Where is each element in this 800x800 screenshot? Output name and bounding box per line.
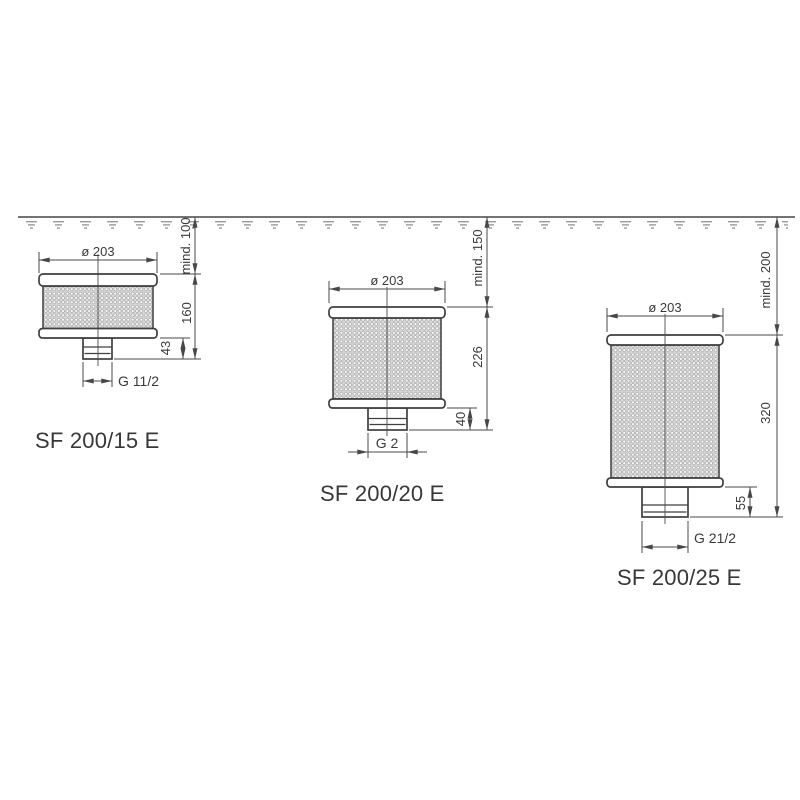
water-surface	[18, 217, 795, 232]
outlet-height-label: 43	[158, 341, 173, 355]
model-name-label: SF 200/15 E	[35, 428, 160, 453]
body-height-label: 320	[758, 402, 773, 424]
outlet-height-label: 55	[733, 496, 748, 510]
min-submersion-label: mind. 150	[470, 229, 485, 286]
thread-size-label: G 21/2	[694, 530, 736, 546]
body-height-label: 160	[179, 302, 194, 324]
diameter-label: ø 203	[648, 300, 681, 315]
technical-drawing-page: ø 203 mind. 100 160 43 G 11/2 SF 200/15 …	[0, 0, 800, 800]
thread-size-label: G 2	[376, 435, 399, 451]
thread-size-label: G 11/2	[118, 373, 159, 389]
model-name-label: SF 200/25 E	[617, 565, 742, 590]
diameter-label: ø 203	[370, 273, 403, 288]
filter-sf-200-20-e: ø 203 mind. 150 226 40 G 2 SF 200/20 E	[320, 217, 493, 506]
filter-sf-200-15-e: ø 203 mind. 100 160 43 G 11/2 SF 200/15 …	[35, 217, 201, 453]
outlet-height-label: 40	[453, 412, 468, 426]
filter-sf-200-25-e: ø 203 mind. 200 320 55 G 21/2 SF 200/25 …	[607, 217, 783, 590]
diameter-label: ø 203	[81, 244, 114, 259]
water-surface-hatching	[18, 219, 788, 232]
min-submersion-label: mind. 100	[178, 217, 193, 274]
outlet-connector	[83, 338, 112, 359]
model-name-label: SF 200/20 E	[320, 481, 445, 506]
body-height-label: 226	[470, 346, 485, 368]
suction-filter-dimension-drawing: ø 203 mind. 100 160 43 G 11/2 SF 200/15 …	[0, 0, 800, 800]
min-submersion-label: mind. 200	[758, 251, 773, 308]
